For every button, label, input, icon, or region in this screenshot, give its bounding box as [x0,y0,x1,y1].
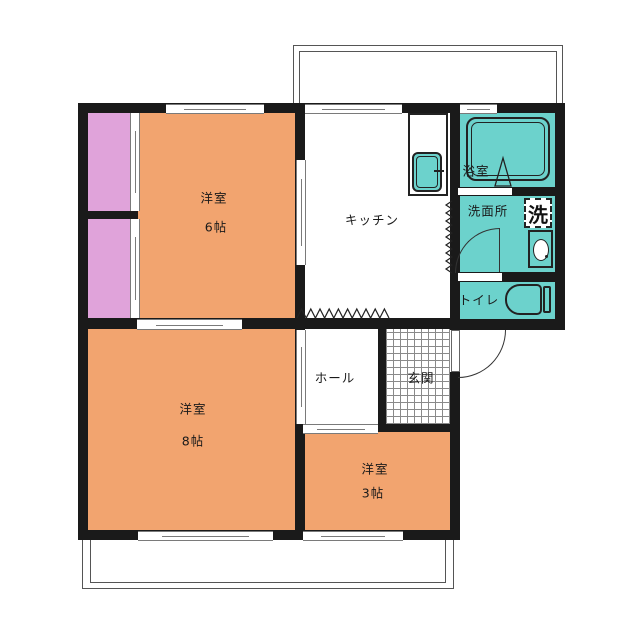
wall-right-lower [450,372,460,540]
window-bedroom6 [166,104,264,114]
sliding-door-hall-bedroom3 [303,424,378,434]
wall-middle [78,318,460,329]
window-bedroom3 [303,531,403,541]
accordion-door-vertical-icon [443,201,453,275]
window-bedroom8 [138,531,273,541]
opening-bath-washroom [458,188,512,195]
washroom-label: 洗面所 [468,201,509,220]
entrance-door-arc-icon [458,330,506,378]
closet-lower [88,219,130,318]
wall-closet-divider [78,211,138,219]
sliding-door-bedroom8-hall [296,330,306,424]
bedroom6-name-label: 洋室 [200,188,227,207]
entrance-label: 玄関 [407,368,434,387]
washing-machine-icon: 洗 [524,198,552,228]
bedroom8-size-label: 8帖 [182,431,204,450]
sliding-door-closet-upper [130,113,140,211]
window-kitchen [305,104,402,114]
faucet-icon [434,170,444,172]
bedroom3-size-label: 3帖 [362,483,384,502]
room-bedroom8 [88,329,295,530]
wall-hall-entrance [378,329,386,432]
room-bedroom6 [138,113,295,318]
washbasin-icon [528,230,553,268]
toilet-icon [505,284,542,315]
washer-label: 洗 [528,199,548,228]
bath-label: 浴室 [462,161,489,180]
sliding-door-closet-lower [130,219,140,318]
folding-door-icon [493,156,513,188]
closet-upper [88,113,130,211]
toilet-tank-icon [543,286,551,313]
wall-toilet-bottom [450,319,565,330]
room-bedroom3 [305,432,450,530]
bedroom3-name-label: 洋室 [361,459,388,478]
bedroom8-name-label: 洋室 [179,399,206,418]
wall-right [555,103,565,330]
hall-label: ホール [315,368,356,387]
opening-washroom-toilet [458,273,502,281]
sliding-door-bedroom6-bedroom8 [137,319,242,330]
balcony-bottom-inner [90,537,446,583]
kitchen-sink-icon [412,152,442,192]
balcony-top-inner [299,51,557,108]
window-bath [460,104,497,114]
floor-plan: 洗 洋室 6帖 キッチン 浴室 洗面所 トイレ ホール 玄関 洋室 8帖 洋室 … [0,0,640,640]
toilet-label: トイレ [459,290,500,309]
kitchen-label: キッチン [345,210,399,229]
bedroom6-size-label: 6帖 [205,217,227,236]
accordion-door-icon [297,307,389,319]
sliding-door-bedroom6-kitchen [296,160,306,265]
